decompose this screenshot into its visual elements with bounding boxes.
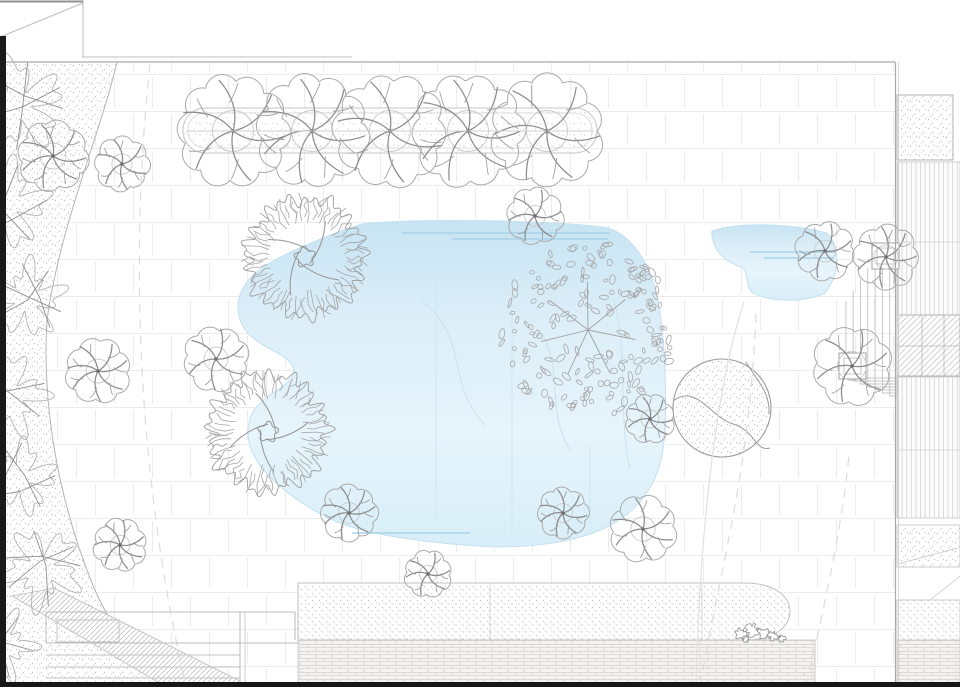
right-gravel-mid (897, 525, 960, 567)
right-walk-edge (897, 576, 960, 600)
bottom-gravel-bed (298, 583, 790, 640)
neighbor-wall-diag (0, 3, 83, 37)
tree-trunk-dot (426, 572, 430, 576)
tree-trunk-dot (823, 249, 827, 253)
tree-trunk-dot (118, 543, 122, 547)
frame-bottom-bar (0, 682, 960, 687)
tree-trunk-dot (347, 511, 351, 515)
tree-trunk-dot (648, 417, 652, 421)
bottom-brick-paving (298, 640, 815, 684)
tree-trunk-dot (96, 369, 100, 373)
tree-branchlet (90, 344, 91, 357)
tree-trunk-dot (561, 511, 565, 515)
tree-trunk-dot (533, 214, 537, 218)
tree-branch (587, 282, 588, 330)
right-brick-paving (897, 640, 960, 684)
tree-trunk-dot (120, 162, 124, 166)
tree-trunk-dot (850, 364, 854, 368)
tree-trunk-dot (884, 255, 888, 259)
tree-trunk-dot (214, 357, 218, 361)
plan-drawing (0, 0, 960, 687)
right-deck-lower (897, 377, 960, 518)
right-deck-upper (897, 162, 960, 315)
tree-trunk-dot (641, 527, 645, 531)
tree-trunk-dot (51, 154, 55, 158)
right-glass-roof (897, 315, 960, 376)
right-gravel-low (897, 600, 960, 640)
site-plan (0, 0, 960, 687)
right-gravel-upper (897, 95, 953, 160)
frame-left-bar (0, 36, 6, 687)
